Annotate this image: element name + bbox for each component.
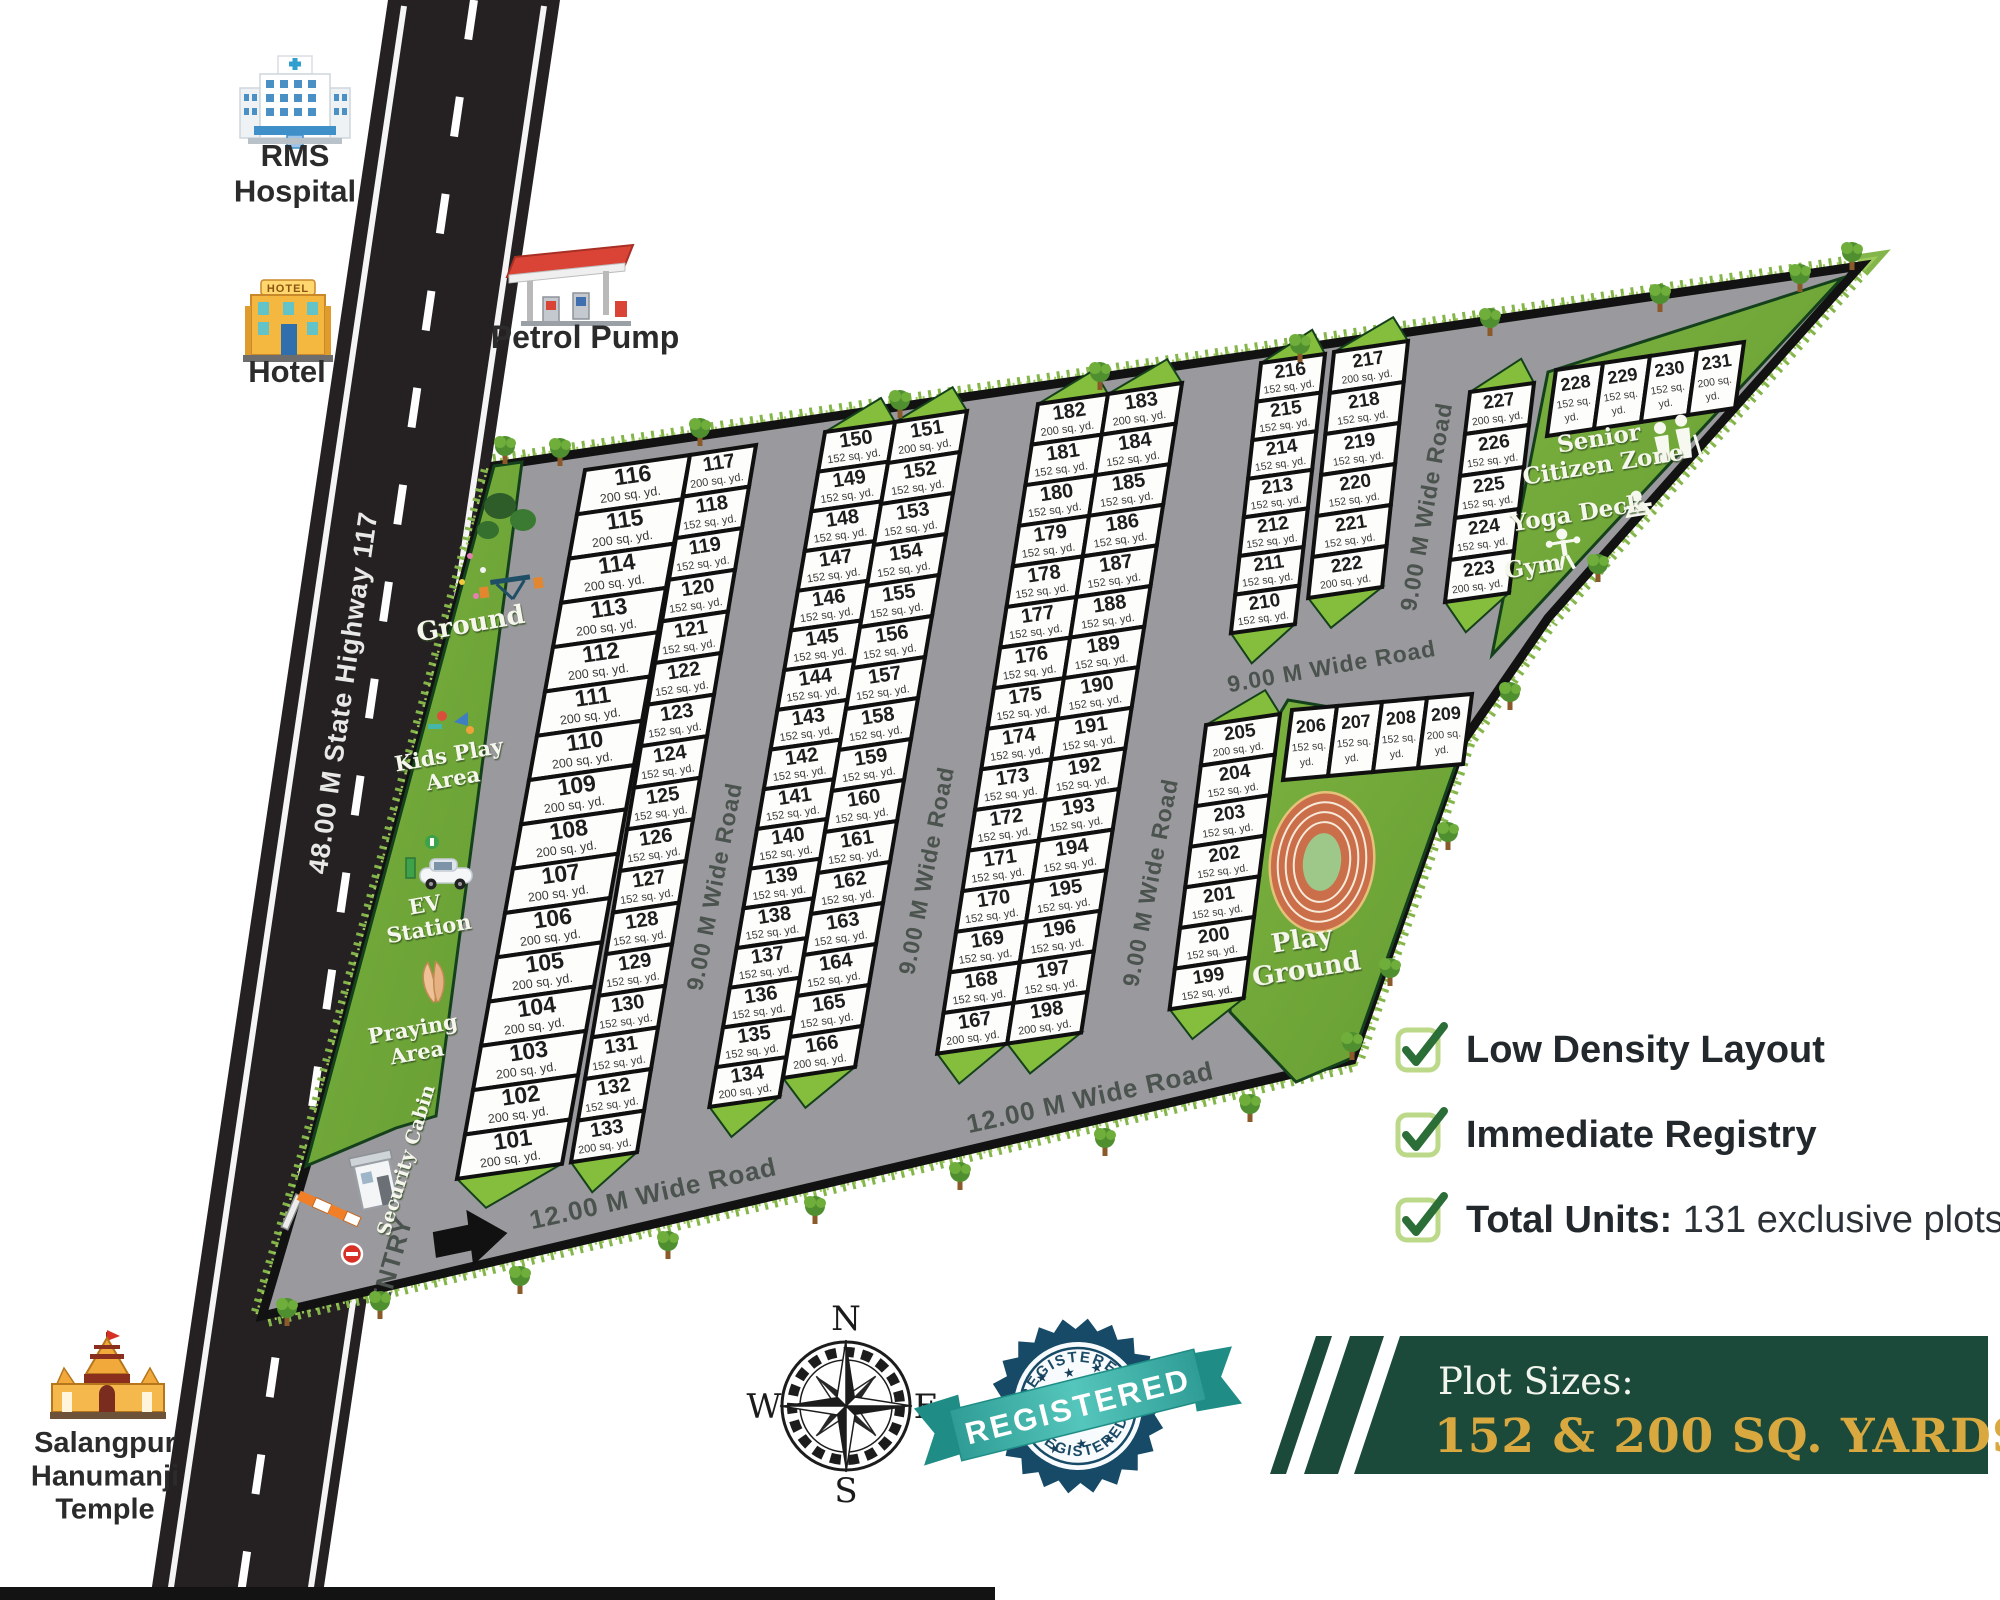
plot-133: 133200 sq. yd. <box>571 1111 644 1163</box>
petrol-pump-icon <box>507 245 633 326</box>
checkbox-icon <box>1398 1026 1444 1070</box>
tree-icon <box>1499 682 1521 710</box>
svg-text:yd.: yd. <box>1611 404 1627 418</box>
svg-text:yd.: yd. <box>1344 752 1359 765</box>
stop-sign-icon <box>342 1244 362 1264</box>
temple-label: SalangpurHanumanjiTemple <box>31 1427 179 1526</box>
feature-2: Immediate Registry <box>1466 1114 1817 1156</box>
petrol-pump-label: Petrol Pump <box>491 319 679 355</box>
plot-134: 134200 sq. yd. <box>709 1057 786 1107</box>
compass-south: S <box>834 1471 857 1511</box>
svg-text:yd.: yd. <box>1705 390 1721 404</box>
site-plan-svg: 48.00 M State Highway 117 116200 sq. yd.… <box>0 0 2000 1600</box>
feature-3: Total Units: 131 exclusive plots <box>1466 1199 2000 1241</box>
hospital-icon <box>240 56 350 148</box>
tree-icon <box>369 1291 391 1319</box>
svg-text:HOTEL: HOTEL <box>267 283 309 295</box>
features-checklist: Low Density Layout Immediate Registry To… <box>1398 1026 2000 1241</box>
banner-sizes: 152 & 200 SQ. YARDS <box>1434 1409 2000 1464</box>
feature-1: Low Density Layout <box>1466 1029 1825 1071</box>
tree-icon <box>657 1231 679 1259</box>
plot-210: 210152 sq. yd. <box>1231 586 1299 634</box>
site-plan-poster: 48.00 M State Highway 117 116200 sq. yd.… <box>0 0 2000 1600</box>
compass-rose-icon: N E S W <box>747 1299 939 1511</box>
tree-icon <box>1239 1094 1261 1122</box>
svg-text:yd.: yd. <box>1299 756 1314 769</box>
plot-167: 167200 sq. yd. <box>937 1003 1013 1054</box>
checkbox-icon <box>1398 1196 1444 1240</box>
svg-text:209: 209 <box>1430 703 1462 726</box>
hospital-label: RMSHospital <box>234 138 356 209</box>
temple-icon <box>50 1330 166 1419</box>
svg-text:206: 206 <box>1295 715 1327 738</box>
plot-sizes-banner: Plot Sizes: 152 & 200 SQ. YARDS <box>1270 1336 2000 1474</box>
plot-209: 209200 sq.yd. <box>1418 694 1472 768</box>
tree-icon <box>949 1162 971 1190</box>
checkbox-icon <box>1398 1111 1444 1155</box>
svg-text:208: 208 <box>1385 707 1417 730</box>
tree-icon <box>1437 822 1459 850</box>
tree-icon <box>509 1266 531 1294</box>
compass-north: N <box>831 1299 861 1339</box>
registered-badge: REGISTERED REGISTERED ★ ★ ★ ★ ★ ★ REGIST… <box>903 1291 1253 1521</box>
tree-icon <box>1094 1128 1116 1156</box>
svg-text:yd.: yd. <box>1658 397 1674 411</box>
hotel-label: Hotel <box>248 354 326 389</box>
svg-text:yd.: yd. <box>1389 748 1404 761</box>
svg-text:yd.: yd. <box>1564 411 1580 425</box>
bottom-edge-strip <box>0 1587 995 1600</box>
svg-text:207: 207 <box>1340 711 1372 734</box>
compass-west: W <box>747 1387 782 1427</box>
plot-block-r206: 206152 sq.yd.207152 sq.yd.208152 sq.yd.2… <box>1283 694 1472 780</box>
tree-icon <box>804 1196 826 1224</box>
banner-title: Plot Sizes: <box>1438 1360 1634 1403</box>
svg-text:yd.: yd. <box>1434 744 1449 757</box>
hotel-icon: HOTEL <box>243 280 333 362</box>
plot-231: 231200 sq.yd. <box>1688 342 1744 415</box>
